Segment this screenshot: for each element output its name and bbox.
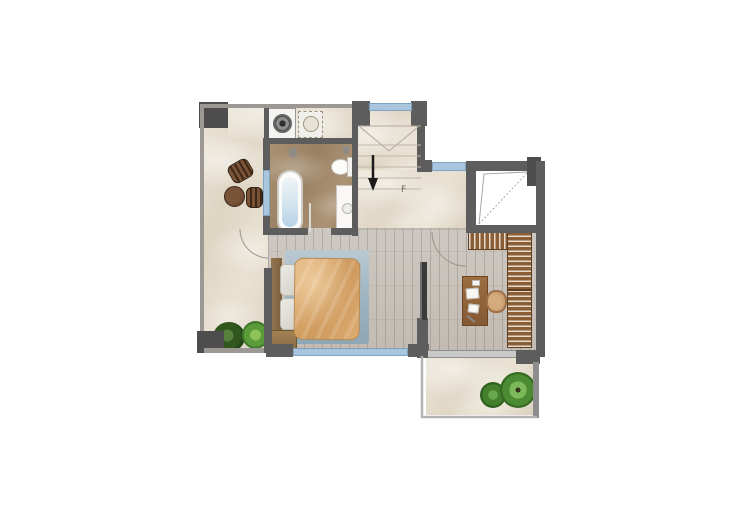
shower-fixture-icon — [343, 146, 349, 154]
exterior-wall — [204, 104, 358, 108]
wall-stub — [417, 318, 428, 358]
washer-drum-icon — [273, 114, 292, 133]
terrace-sliding-door — [428, 350, 516, 358]
terrace-railing — [533, 362, 539, 418]
bathtub-water — [282, 177, 298, 227]
hallway-floor — [203, 106, 268, 353]
desk-chair — [486, 290, 507, 313]
void-open-below — [476, 169, 528, 226]
wall-corner — [266, 344, 293, 357]
round-side-table — [224, 186, 245, 207]
paper — [472, 280, 480, 286]
laundry-sink — [298, 111, 323, 138]
wall-corner — [411, 101, 427, 126]
sink-bowl — [303, 116, 319, 132]
laptop — [466, 287, 480, 299]
exterior-wall — [536, 161, 545, 357]
interior-wall — [417, 160, 432, 172]
bedroom-wall — [264, 268, 272, 353]
stool — [246, 187, 263, 208]
window — [293, 348, 408, 356]
landing-floor — [356, 170, 468, 232]
washing-machine — [268, 108, 296, 139]
bathtub — [277, 170, 303, 234]
exterior-wall — [204, 348, 268, 353]
window — [432, 162, 466, 171]
bathroom-wall — [263, 138, 358, 144]
wardrobe-divider — [507, 289, 532, 291]
void-wall — [466, 171, 476, 227]
window — [263, 170, 270, 216]
shower-fixture-icon — [289, 148, 297, 157]
terrace-palm — [500, 372, 536, 408]
wall-corner — [352, 101, 370, 126]
window — [369, 103, 412, 111]
bathroom-wall — [331, 228, 358, 235]
bed-duvet — [294, 258, 361, 341]
exterior-wall — [200, 104, 204, 353]
bathroom-wall — [263, 143, 270, 171]
bathroom-wall — [263, 228, 308, 235]
desk — [462, 276, 488, 326]
notebook — [467, 303, 479, 313]
floor-plan-canvas: F — [0, 0, 740, 523]
interior-wall — [264, 108, 269, 140]
void-wall — [466, 225, 540, 233]
glass-partition — [309, 203, 311, 232]
sliding-door-panel — [420, 262, 427, 320]
